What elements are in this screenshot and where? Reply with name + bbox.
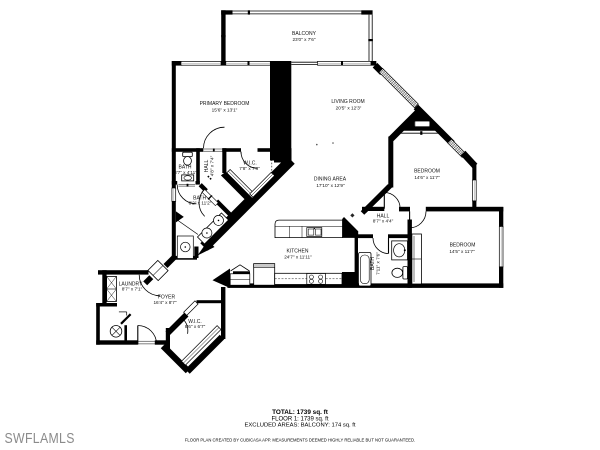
svg-text:24'7" x 11'11": 24'7" x 11'11" bbox=[284, 255, 312, 260]
svg-text:PRIMARY BEDROOM: PRIMARY BEDROOM bbox=[200, 101, 250, 107]
svg-text:14'6" x 11'7": 14'6" x 11'7" bbox=[414, 175, 440, 180]
svg-text:FLOOR PLAN CREATED BY CUBICASA: FLOOR PLAN CREATED BY CUBICASA APP. MEAS… bbox=[185, 437, 415, 442]
svg-text:16'4" x 8'7": 16'4" x 8'7" bbox=[153, 300, 176, 305]
svg-text:8'6" x 6'7": 8'6" x 6'7" bbox=[185, 324, 206, 329]
svg-text:8'7" x 7'1": 8'7" x 7'1" bbox=[122, 287, 143, 292]
svg-text:EXCLUDED AREAS: BALCONY: 174 s: EXCLUDED AREAS: BALCONY: 174 sq. ft bbox=[244, 423, 355, 429]
svg-text:SWFLAMLS: SWFLAMLS bbox=[5, 430, 75, 446]
svg-text:BEDROOM: BEDROOM bbox=[414, 169, 440, 175]
svg-text:LIVING ROOM: LIVING ROOM bbox=[331, 99, 364, 105]
svg-text:4'8" x 7'4": 4'8" x 7'4" bbox=[210, 155, 215, 176]
svg-text:3'7" x 4'11": 3'7" x 4'11" bbox=[174, 170, 197, 175]
svg-text:BEDROOM: BEDROOM bbox=[450, 243, 476, 249]
svg-text:15'6" x 13'1": 15'6" x 13'1" bbox=[212, 108, 238, 113]
svg-text:7'11" x 7'6": 7'11" x 7'6" bbox=[376, 252, 381, 275]
svg-text:14'5" x 11'7": 14'5" x 11'7" bbox=[449, 249, 475, 254]
svg-text:17'10" x 12'9": 17'10" x 12'9" bbox=[316, 183, 345, 188]
svg-text:TOTAL: 1739 sq. ft: TOTAL: 1739 sq. ft bbox=[272, 409, 329, 416]
svg-text:7'8" x 7'3": 7'8" x 7'3" bbox=[239, 166, 260, 171]
svg-text:8'7" x 4'4": 8'7" x 4'4" bbox=[373, 219, 394, 224]
svg-text:20'5" x 12'3": 20'5" x 12'3" bbox=[336, 106, 362, 111]
svg-text:23'0" x 7'6": 23'0" x 7'6" bbox=[292, 37, 315, 42]
svg-text:DINING AREA: DINING AREA bbox=[314, 177, 347, 183]
svg-text:FLOOR 1: 1739 sq. ft: FLOOR 1: 1739 sq. ft bbox=[271, 416, 328, 422]
svg-text:8'2" x 11'2": 8'2" x 11'2" bbox=[189, 200, 212, 205]
